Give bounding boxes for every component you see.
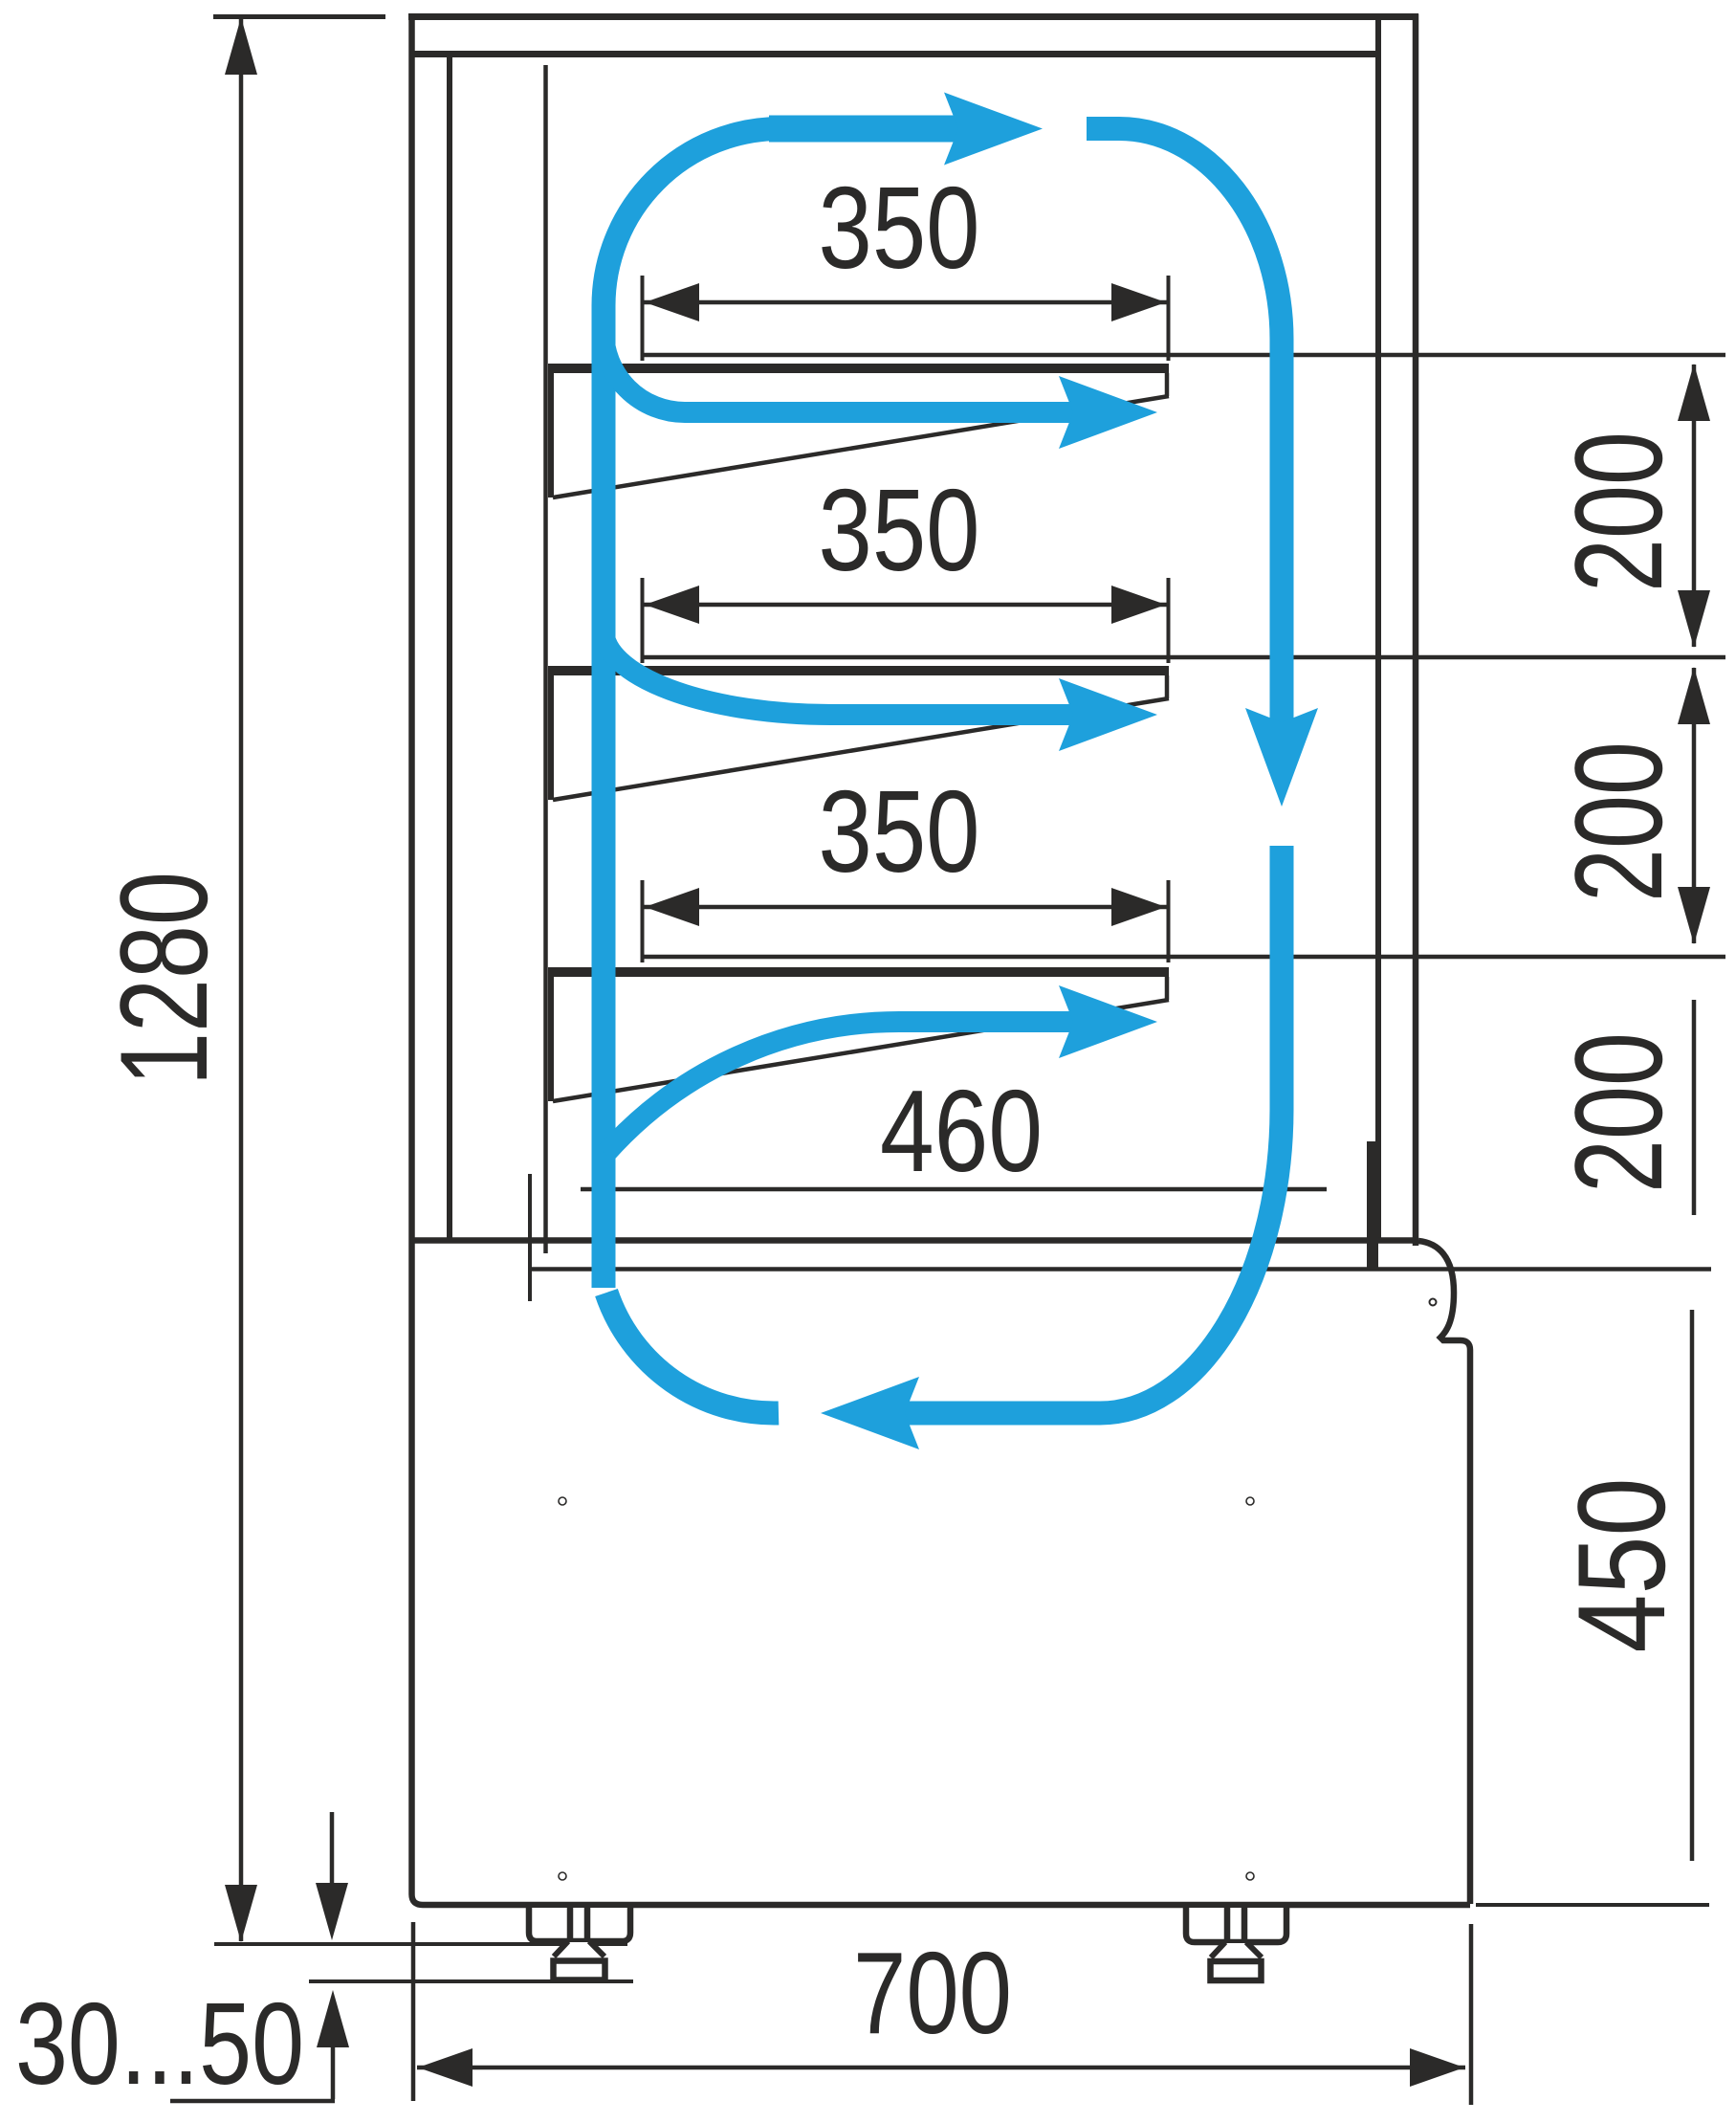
- svg-text:700: 700: [853, 1928, 1012, 2058]
- svg-text:1280: 1280: [94, 872, 233, 1086]
- svg-text:200: 200: [1549, 741, 1688, 902]
- svg-text:350: 350: [819, 766, 980, 896]
- svg-text:350: 350: [819, 163, 980, 293]
- svg-text:200: 200: [1549, 1032, 1688, 1193]
- svg-text:30...50: 30...50: [15, 1979, 304, 2109]
- svg-text:450: 450: [1551, 1478, 1691, 1653]
- svg-text:200: 200: [1549, 431, 1688, 592]
- svg-text:460: 460: [880, 1066, 1043, 1196]
- svg-text:350: 350: [819, 465, 980, 595]
